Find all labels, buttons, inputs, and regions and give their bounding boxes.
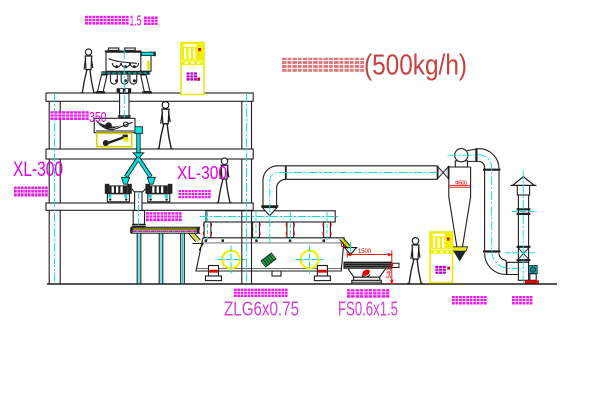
- svg-text:XL-300: XL-300: [13, 158, 63, 181]
- svg-text:1500: 1500: [358, 249, 372, 255]
- svg-text:540: 540: [387, 268, 393, 279]
- svg-text:1.5: 1.5: [130, 13, 142, 30]
- svg-text:XL-300: XL-300: [177, 163, 227, 183]
- svg-text:(500kg/h): (500kg/h): [364, 50, 467, 82]
- svg-text:ZLG6x0.75: ZLG6x0.75: [224, 299, 299, 321]
- svg-text:FS0.6x1.5: FS0.6x1.5: [338, 299, 398, 321]
- svg-text:350: 350: [89, 109, 107, 126]
- svg-text:Φ500: Φ500: [455, 181, 467, 187]
